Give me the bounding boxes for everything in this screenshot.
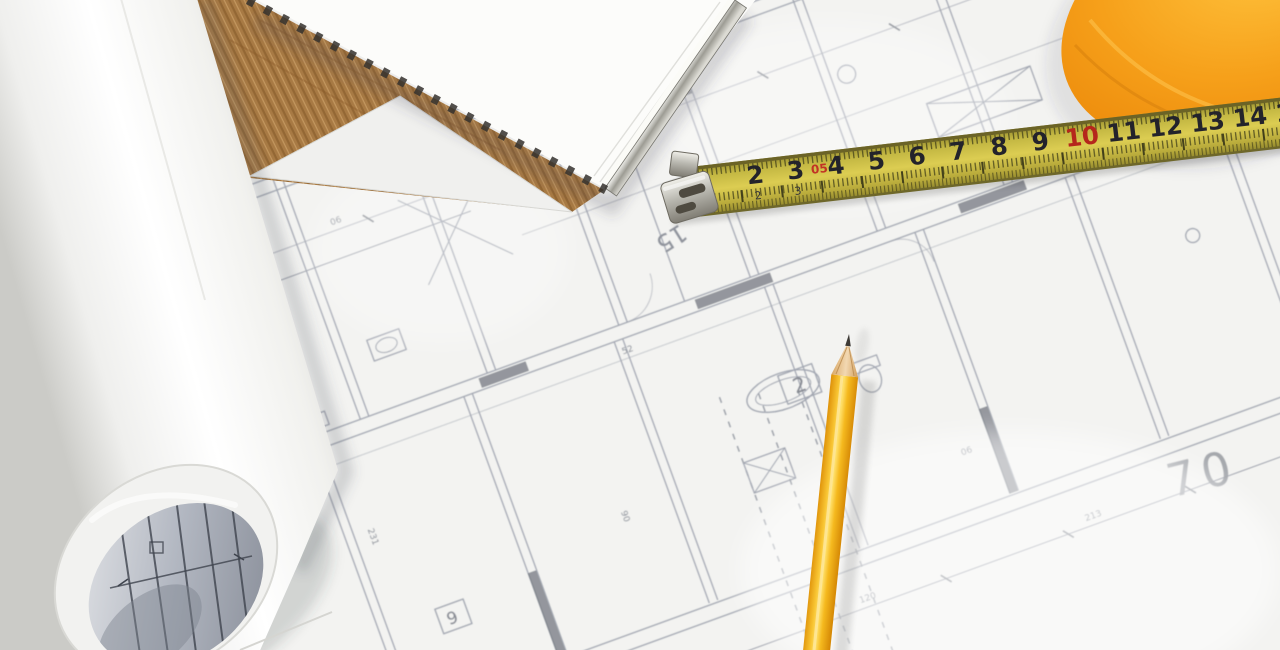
svg-text:4: 4 (826, 150, 846, 181)
svg-text:9: 9 (1030, 126, 1050, 157)
svg-text:12: 12 (1147, 110, 1184, 143)
svg-text:2: 2 (745, 160, 765, 191)
svg-text:14: 14 (1231, 100, 1268, 133)
scene-photo: 2 9 3 15 70 231 105 06 285 332 235 90 12… (0, 0, 1280, 650)
svg-text:11: 11 (1105, 115, 1142, 148)
svg-text:13: 13 (1189, 105, 1226, 138)
svg-text:6: 6 (907, 141, 927, 172)
photo-canvas: 2 9 3 15 70 231 105 06 285 332 235 90 12… (0, 0, 1280, 650)
svg-text:10: 10 (1063, 120, 1100, 153)
svg-text:8: 8 (989, 131, 1009, 162)
svg-text:7: 7 (948, 136, 968, 167)
tape-half-mark: 05 (810, 161, 828, 177)
svg-text:5: 5 (866, 145, 886, 176)
svg-text:3: 3 (785, 155, 805, 186)
